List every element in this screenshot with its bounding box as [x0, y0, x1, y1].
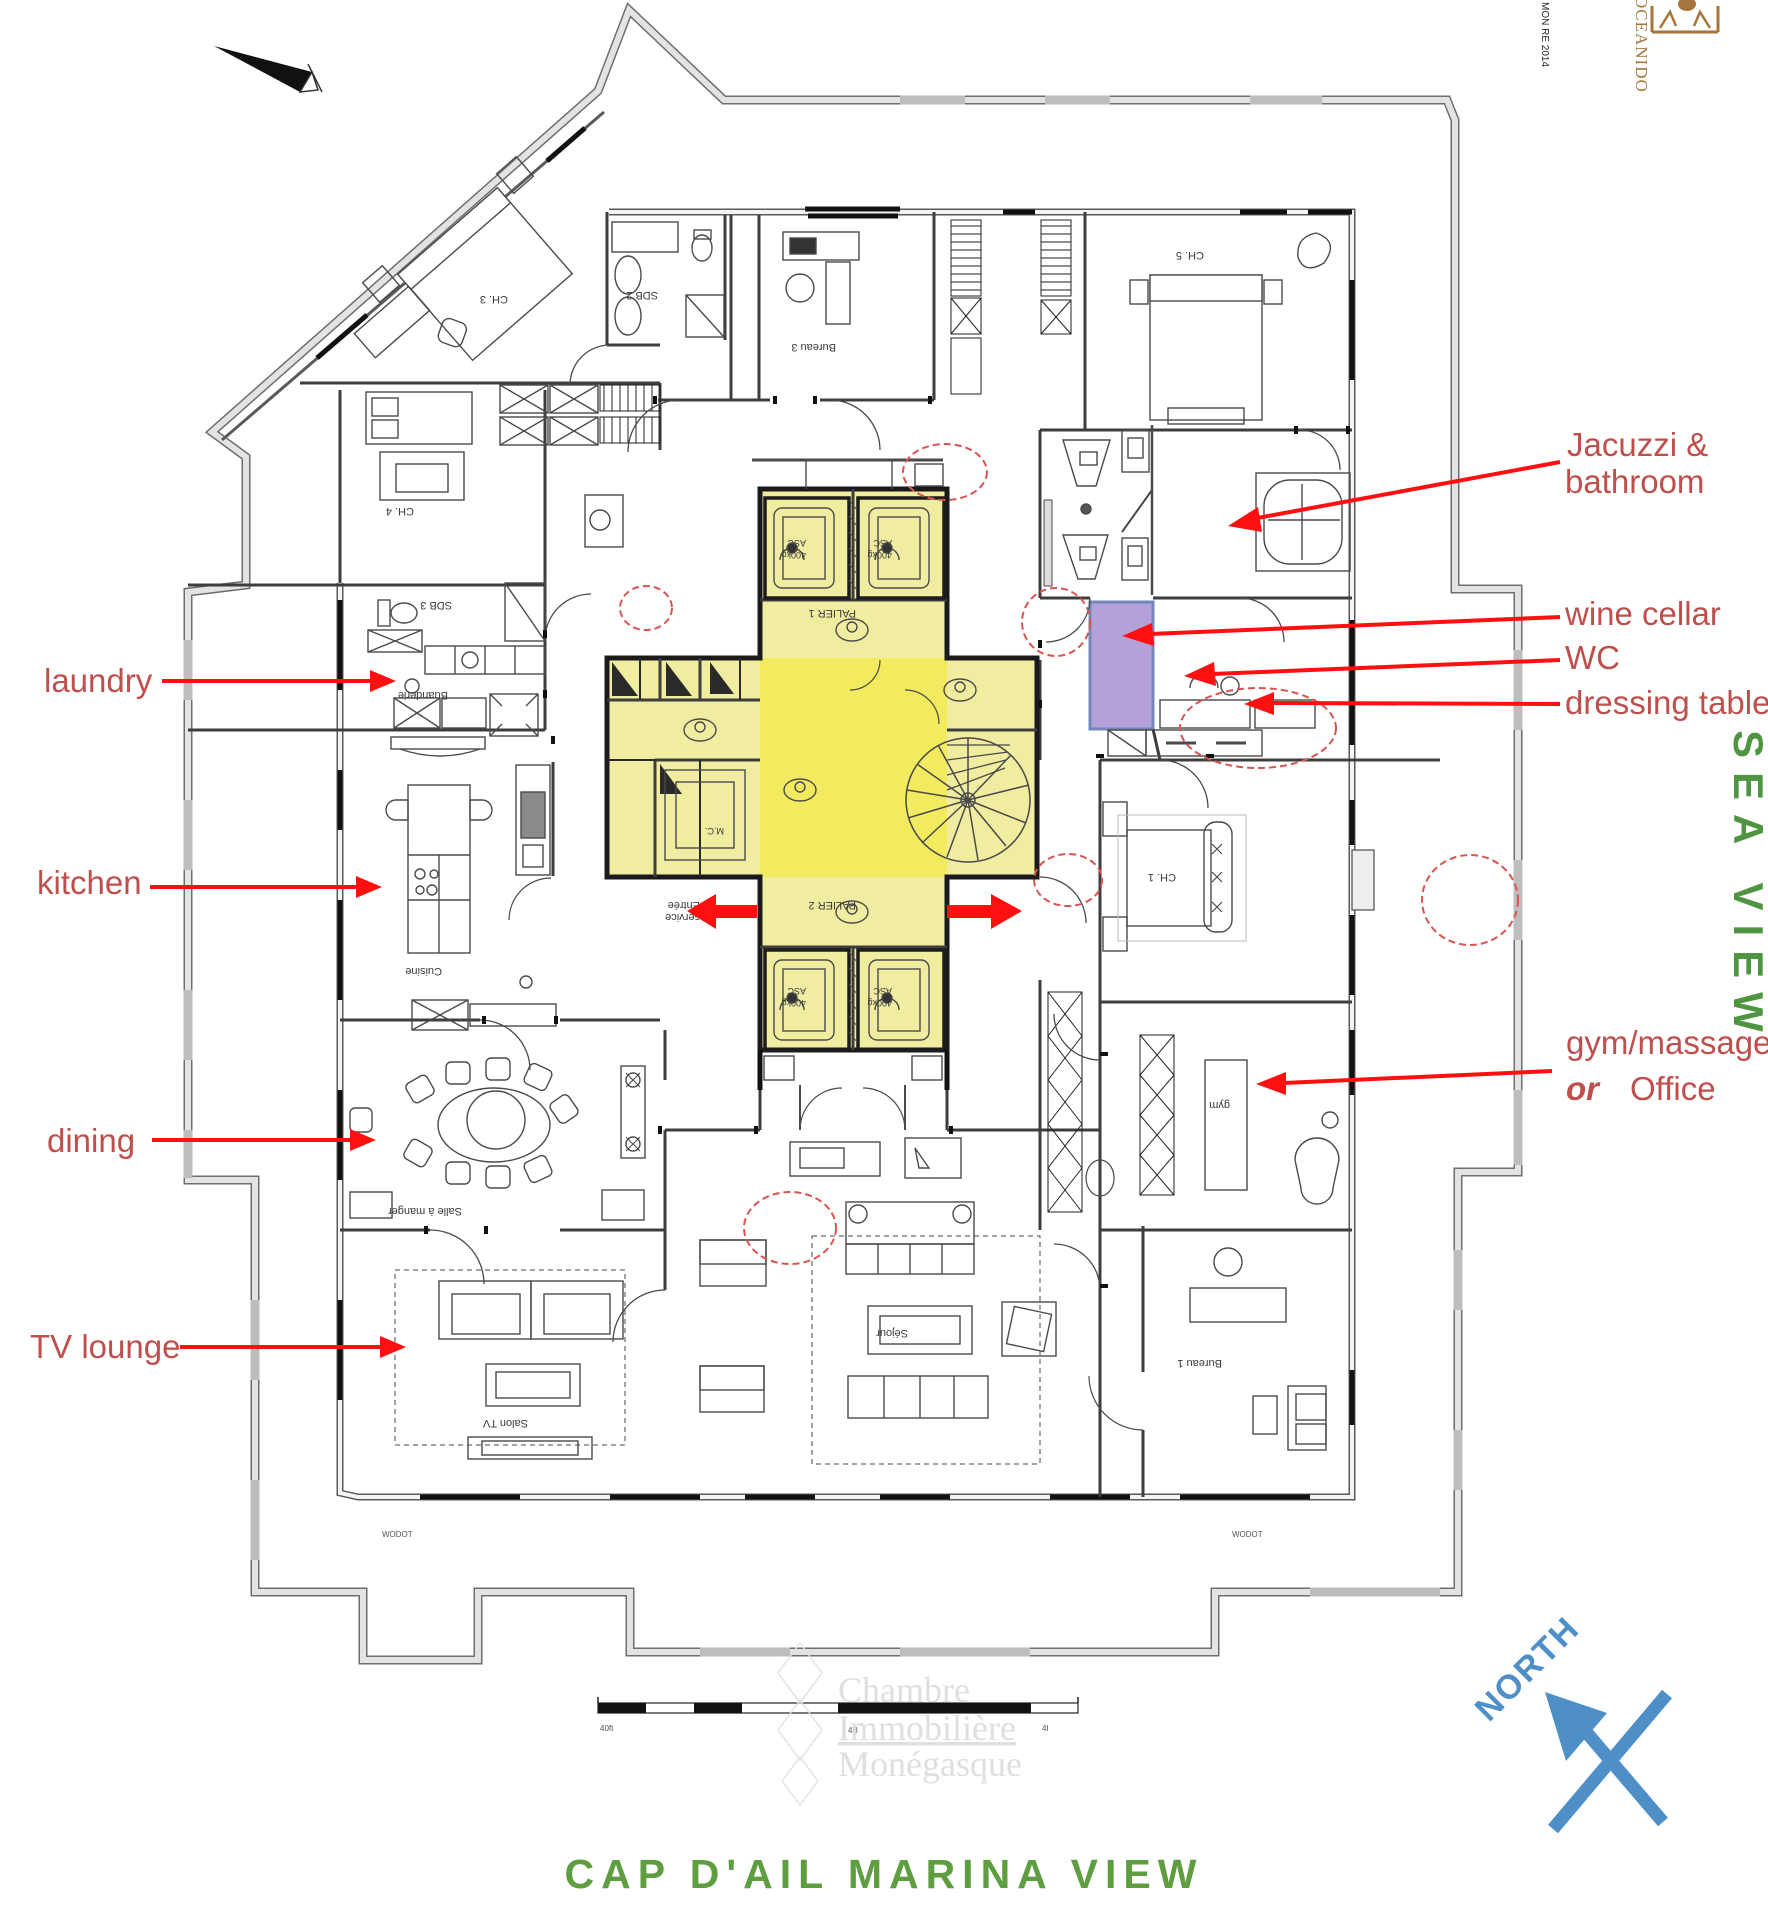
svg-text:CH. 5: CH. 5 — [1176, 249, 1204, 261]
svg-text:ASC: ASC — [787, 986, 806, 996]
svg-text:PALIER 2: PALIER 2 — [809, 899, 857, 911]
svg-text:Buanderie: Buanderie — [398, 689, 448, 701]
svg-text:Immobilière: Immobilière — [838, 1708, 1016, 1748]
svg-text:kitchen: kitchen — [37, 864, 142, 901]
svg-text:4I: 4I — [1042, 1724, 1049, 1733]
svg-text:dining: dining — [47, 1122, 135, 1159]
svg-text:ASC: ASC — [873, 538, 892, 548]
svg-text:40ft: 40ft — [600, 1724, 614, 1733]
svg-text:MON RE 2014: MON RE 2014 — [1539, 2, 1550, 67]
svg-text:400kg: 400kg — [867, 550, 892, 560]
svg-text:or: or — [1566, 1070, 1601, 1107]
svg-text:Bureau 3: Bureau 3 — [791, 341, 836, 353]
svg-text:Monégasque: Monégasque — [838, 1744, 1022, 1784]
svg-text:Chambre: Chambre — [838, 1670, 970, 1710]
svg-text:CAP D'AIL MARINA VIEW: CAP D'AIL MARINA VIEW — [565, 1851, 1204, 1897]
svg-text:400kg: 400kg — [781, 550, 806, 560]
svg-text:SDB 3: SDB 3 — [420, 599, 452, 611]
svg-text:TV lounge: TV lounge — [30, 1328, 180, 1365]
svg-text:400kg: 400kg — [781, 998, 806, 1008]
svg-text:wine cellar: wine cellar — [1564, 595, 1721, 632]
svg-text:Office: Office — [1630, 1070, 1716, 1107]
svg-text:dressing table: dressing table — [1565, 684, 1768, 721]
svg-text:laundry: laundry — [44, 662, 153, 699]
svg-text:gym: gym — [1209, 1099, 1230, 1111]
svg-text:Salle à manger: Salle à manger — [388, 1205, 462, 1217]
svg-text:ASC: ASC — [873, 986, 892, 996]
svg-text:Jacuzzi &: Jacuzzi & — [1567, 426, 1708, 463]
svg-text:SEA VIEW: SEA VIEW — [1725, 730, 1768, 1046]
svg-text:WC: WC — [1565, 639, 1620, 676]
svg-text:PALIER 1: PALIER 1 — [809, 607, 857, 619]
svg-text:Séjour: Séjour — [876, 1327, 908, 1339]
svg-text:Bureau 1: Bureau 1 — [1177, 1357, 1222, 1369]
svg-text:CH. 1: CH. 1 — [1148, 871, 1176, 883]
svg-text:OCEANIDO: OCEANIDO — [1632, 0, 1651, 93]
svg-text:SDB 2: SDB 2 — [626, 289, 658, 301]
svg-text:400kg: 400kg — [867, 998, 892, 1008]
svg-text:Salon TV: Salon TV — [482, 1417, 528, 1429]
svg-text:WODOT: WODOT — [382, 1530, 413, 1539]
svg-text:bathroom: bathroom — [1565, 463, 1704, 500]
svg-text:WODOT: WODOT — [1232, 1530, 1263, 1539]
svg-text:CH. 4: CH. 4 — [386, 505, 414, 517]
svg-text:Cuisine: Cuisine — [405, 965, 442, 977]
svg-text:CH. 3: CH. 3 — [480, 293, 508, 305]
svg-text:ASC: ASC — [787, 538, 806, 548]
svg-text:M.C.: M.C. — [705, 826, 724, 836]
